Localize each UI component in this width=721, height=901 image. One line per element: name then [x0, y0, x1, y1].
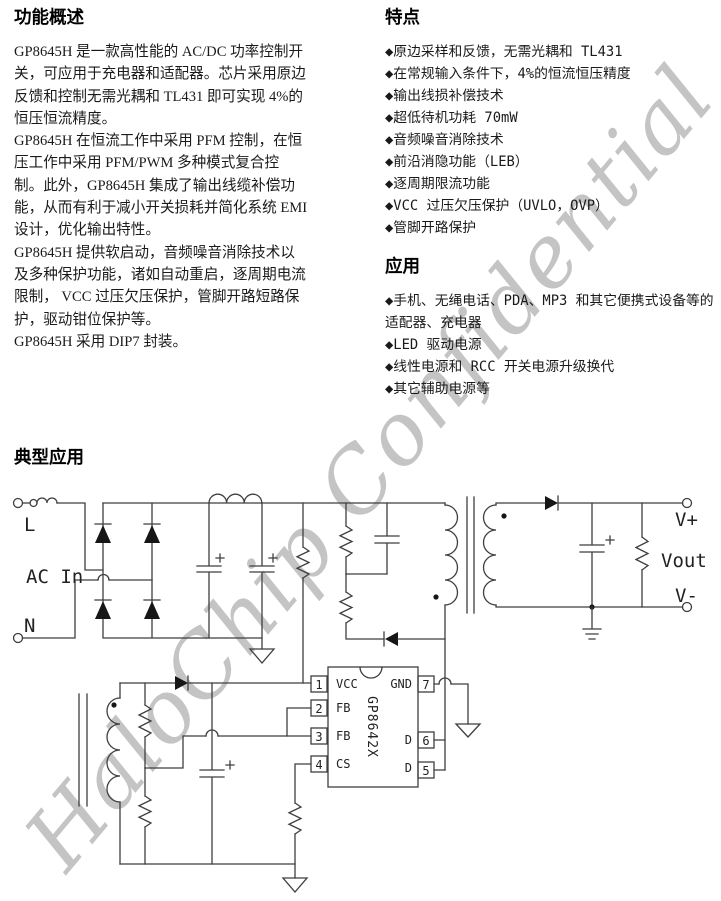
ground-symbol — [456, 724, 480, 737]
application-item: ◆线性电源和 RCC 开关电源升级换代 — [385, 356, 717, 378]
clamp-diode-icon — [385, 632, 398, 646]
drain-wires — [434, 740, 445, 770]
pin7-label: GND — [390, 677, 412, 691]
aux-core-lines — [79, 694, 87, 806]
label-vout: Vout — [661, 550, 707, 572]
text-line: 设计，优化输出特性。 — [14, 219, 362, 241]
pin3-number: 3 — [315, 730, 322, 744]
secondary-winding — [484, 505, 497, 605]
overview-section: 功能概述 GP8645H 是一款高性能的 AC/DC 功率控制开关，可应用于充电… — [14, 4, 362, 353]
feature-item: ◆管脚开路保护 — [385, 217, 717, 239]
applications-title: 应用 — [385, 253, 717, 278]
applications-list: ◆手机、无绳电话、PDA、MP3 和其它便携式设备等的适配器、充电器◆LED 驱… — [385, 290, 717, 400]
earth-ground-symbol — [583, 607, 601, 639]
primary-dot — [433, 594, 438, 599]
text-line: GP8645H 提供软启动，音频噪音消除技术以 — [14, 242, 362, 264]
vplus-terminal — [683, 499, 692, 508]
pin6-label: D — [405, 733, 412, 747]
overview-title: 功能概述 — [14, 4, 362, 29]
gnd-wire — [434, 684, 468, 724]
startup-resistor — [297, 503, 309, 683]
typical-application-title: 典型应用 — [14, 444, 84, 469]
text-line: GP8645H 采用 DIP7 封装。 — [14, 331, 362, 353]
label-ac-in: AC In — [26, 566, 83, 588]
text-line: 压工作中采用 PFM/PWM 多种模式复合控 — [14, 152, 362, 174]
label-vminus: V- — [675, 585, 698, 607]
aux-dot — [111, 702, 116, 707]
application-item: ◆LED 驱动电源 — [385, 334, 717, 356]
pin5-number: 5 — [422, 764, 429, 778]
text-line: 护，驱动钳位保护等。 — [14, 309, 362, 331]
features-applications-section: 特点 ◆原边采样和反馈，无需光耦和 TL431◆在常规输入条件下，4%的恒流恒压… — [385, 4, 717, 400]
text-line: 及多种保护功能，诸如自动重启，逐周期电流 — [14, 264, 362, 286]
feature-item: ◆输出线损补偿技术 — [385, 85, 717, 107]
bridge-rectifier — [95, 503, 262, 638]
feature-item: ◆逐周期限流功能 — [385, 173, 717, 195]
application-item: ◆手机、无绳电话、PDA、MP3 和其它便携式设备等的适配器、充电器 — [385, 290, 717, 334]
ground-symbol — [283, 878, 307, 892]
text-line: 限制， VCC 过压欠压保护，管脚开路短路保 — [14, 286, 362, 308]
filter-inductor — [209, 494, 262, 503]
text-line: 关，可应用于充电器和适配器。芯片采用原边 — [14, 63, 362, 85]
vcc-cap — [200, 683, 224, 864]
output-diode-icon — [545, 496, 558, 510]
pin4-label: CS — [336, 757, 350, 771]
label-neutral: N — [24, 615, 35, 637]
text-line: 能，从而有利于减小开关损耗并简化系统 EMI — [14, 197, 362, 219]
snubber-clamp — [340, 503, 445, 646]
pin1-number: 1 — [315, 678, 322, 692]
features-title: 特点 — [385, 4, 717, 29]
pin7-number: 7 — [422, 678, 429, 692]
aux-diode-icon — [175, 676, 188, 690]
pin5-label: D — [405, 761, 412, 775]
core-lines — [467, 497, 474, 613]
text-line: 反馈和控制无需光耦和 TL431 即可实现 4%的 — [14, 86, 362, 108]
pin4-number: 4 — [315, 758, 322, 772]
cs-sense — [283, 764, 311, 892]
application-item: ◆其它辅助电源等 — [385, 378, 717, 400]
ic-part-number: GP8642X — [364, 696, 379, 758]
features-list: ◆原边采样和反馈，无需光耦和 TL431◆在常规输入条件下，4%的恒流恒压精度◆… — [385, 41, 717, 239]
aux-winding — [107, 698, 120, 802]
pin3-label: FB — [336, 729, 350, 743]
feature-item: ◆VCC 过压欠压保护（UVLO，OVP） — [385, 195, 717, 217]
text-line: 恒压恒流精度。 — [14, 108, 362, 130]
feature-item: ◆前沿消隐功能（LEB） — [385, 151, 717, 173]
ground-symbol — [250, 649, 274, 663]
label-line: L — [24, 514, 35, 536]
fb-tie-wire — [287, 708, 311, 736]
pin1-label: VCC — [336, 677, 358, 691]
ic-gp8642x: 1 2 3 4 7 6 5 VCC FB FB CS GND D D GP864… — [311, 667, 480, 787]
feature-item: ◆音频噪音消除技术 — [385, 129, 717, 151]
text-line: GP8645H 在恒流工作中采用 PFM 控制，在恒 — [14, 130, 362, 152]
fb-divider — [139, 683, 311, 864]
fb-wire — [145, 736, 311, 768]
label-vplus: V+ — [675, 509, 698, 531]
feature-item: ◆在常规输入条件下，4%的恒流恒压精度 — [385, 63, 717, 85]
primary-winding — [445, 505, 457, 605]
ic-notch — [360, 667, 382, 678]
typical-application-section: 典型应用 — [14, 444, 84, 481]
typical-application-schematic: 1 2 3 4 7 6 5 VCC FB FB CS GND D D GP864… — [0, 480, 721, 901]
text-line: GP8645H 是一款高性能的 AC/DC 功率控制开 — [14, 41, 362, 63]
feature-item: ◆原边采样和反馈，无需光耦和 TL431 — [385, 41, 717, 63]
aux-supply — [79, 676, 311, 864]
bridge-diode-icons — [95, 525, 160, 619]
text-line: 制。此外，GP8645H 集成了输出线缆补偿功 — [14, 175, 362, 197]
pin6-number: 6 — [422, 734, 429, 748]
transformer — [433, 497, 682, 770]
pin2-label: FB — [336, 701, 350, 715]
datasheet-page: HaloChip Confidential 功能概述 GP8645H 是一款高性… — [0, 0, 721, 901]
pin2-number: 2 — [315, 702, 322, 716]
secondary-dot — [501, 513, 506, 518]
overview-paragraphs: GP8645H 是一款高性能的 AC/DC 功率控制开关，可应用于充电器和适配器… — [14, 41, 362, 353]
feature-item: ◆超低待机功耗 70mW — [385, 107, 717, 129]
